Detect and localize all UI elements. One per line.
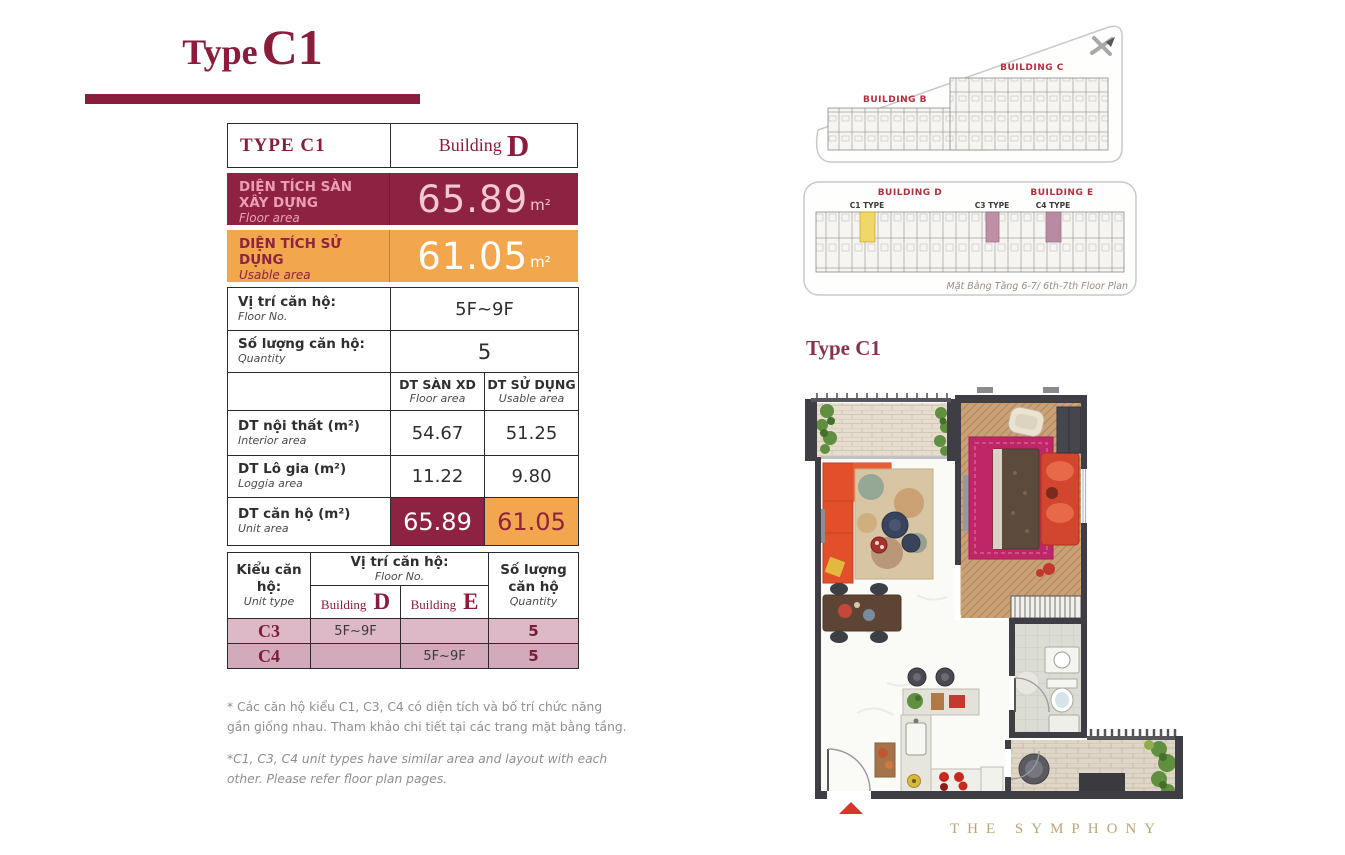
col1-en: Floor area (392, 392, 483, 406)
usable-area-label-en: Usable area (239, 268, 383, 283)
interior-v1: 54.67 (391, 411, 485, 456)
floor-plan-caption: Mặt Bằng Tầng 6-7/ 6th-7th Floor Plan (947, 281, 1129, 292)
unit-table-header1: Kiểu căn hộ: Unit type Vị trí căn hộ: Fl… (228, 553, 579, 586)
c3-quantity: 5 (489, 619, 579, 644)
apartment-floor-plan (797, 383, 1212, 825)
building-e-word: Building (411, 597, 457, 612)
c4-quantity: 5 (489, 644, 579, 669)
quantity-value: 5 (391, 331, 579, 373)
building-letter: D (507, 128, 529, 164)
floor-plan-type-label: Type C1 (806, 336, 881, 361)
quantity-label-vi: Số lượng căn hộ: (238, 336, 389, 352)
floor-no-value: 5F~9F (391, 288, 579, 331)
unit-types-table: Kiểu căn hộ: Unit type Vị trí căn hộ: Fl… (227, 552, 579, 669)
unit-type-header-vi: Kiểu căn hộ: (229, 562, 309, 594)
building-c-block (950, 78, 1108, 150)
row-col-headers: DT SÀN XD Floor area DT SỬ DỤNG Usable a… (228, 373, 579, 411)
unit-area-label-en: Unit area (238, 522, 389, 536)
col2-vi: DT SỬ DỤNG (486, 377, 577, 392)
quantity-label-en: Quantity (238, 352, 389, 366)
floor-area-number: 65.89 (417, 178, 528, 221)
interior-label: DT nội thất (m²) Interior area (228, 411, 391, 456)
usable-area-label-vi: DIỆN TÍCH SỬ DỤNG (239, 236, 383, 268)
usable-area-band: DIỆN TÍCH SỬ DỤNG Usable area 61.05 m² (227, 230, 578, 282)
row-loggia-area: DT Lô gia (m²) Loggia area 11.22 9.80 (228, 456, 579, 498)
building-d-header: Building D (311, 586, 401, 619)
qty-header-en: Quantity (490, 595, 577, 609)
spec-table: TYPE C1 Building D DIỆN TÍCH SÀN XÂY DỰN… (227, 123, 578, 282)
footnote-english: *C1, C3, C4 unit types have similar area… (227, 750, 629, 789)
unit-type-header: Kiểu căn hộ: Unit type (228, 553, 311, 619)
row-floor-no: Vị trí căn hộ: Floor No. 5F~9F (228, 288, 579, 331)
building-d-letter: D (373, 589, 390, 614)
c4-type-label: C4 TYPE (1036, 201, 1071, 210)
c4-building-d-floors (311, 644, 401, 669)
brochure-page: Type C1 TYPE C1 Building D DIỆN TÍCH SÀN… (0, 0, 1345, 855)
site-plan-buildings-b-c: BUILDING B BUILDING C (800, 12, 1140, 172)
floor-no-header-en: Floor No. (312, 570, 487, 584)
interior-v2: 51.25 (485, 411, 579, 456)
floor-no-label: Vị trí căn hộ: Floor No. (228, 288, 391, 331)
qty-header-vi: Số lượng căn hộ (490, 562, 577, 594)
page-title: Type C1 (85, 18, 420, 76)
usable-area-number: 61.05 (417, 235, 528, 278)
empty-cell (228, 373, 391, 411)
c4-code: C4 (228, 644, 311, 669)
floor-area-label-en: Floor area (239, 211, 383, 226)
loggia-label-en: Loggia area (238, 477, 389, 491)
col-header-usable-area: DT SỬ DỤNG Usable area (485, 373, 579, 411)
floor-area-band: DIỆN TÍCH SÀN XÂY DỰNG Floor area 65.89 … (227, 173, 578, 225)
title-underline (85, 94, 420, 104)
c3-building-d-floors: 5F~9F (311, 619, 401, 644)
qty-header: Số lượng căn hộ Quantity (489, 553, 579, 619)
loggia-v1: 11.22 (391, 456, 485, 498)
floor-no-label-vi: Vị trí căn hộ: (238, 294, 389, 310)
c4-building-e-floors: 5F~9F (401, 644, 489, 669)
col-header-floor-area: DT SÀN XD Floor area (391, 373, 485, 411)
c3-building-e-floors (401, 619, 489, 644)
col1-vi: DT SÀN XD (392, 377, 483, 392)
brand-logotype: THE SYMPHONY (950, 821, 1163, 838)
page-title-prefix: Type (182, 32, 257, 72)
spec-header-row: TYPE C1 Building D (227, 123, 578, 168)
floor-area-label-vi: DIỆN TÍCH SÀN XÂY DỰNG (239, 179, 383, 211)
loggia-v2: 9.80 (485, 456, 579, 498)
row-unit-area: DT căn hộ (m²) Unit area 65.89 61.05 (228, 498, 579, 546)
floor-no-label-en: Floor No. (238, 310, 389, 324)
unit-area-label-vi: DT căn hộ (m²) (238, 506, 389, 522)
quantity-label: Số lượng căn hộ: Quantity (228, 331, 391, 373)
loggia-label: DT Lô gia (m²) Loggia area (228, 456, 391, 498)
building-c-label: BUILDING C (1000, 63, 1064, 73)
detail-table: Vị trí căn hộ: Floor No. 5F~9F Số lượng … (227, 287, 579, 546)
floor-no-header-vi: Vị trí căn hộ: (312, 554, 487, 570)
footnote-vietnamese: * Các căn hộ kiểu C1, C3, C4 có diện tíc… (227, 698, 629, 737)
floor-area-value: 65.89 m² (390, 173, 578, 225)
interior-label-vi: DT nội thất (m²) (238, 418, 389, 434)
building-e-label: BUILDING E (1030, 188, 1093, 198)
interior-label-en: Interior area (238, 434, 389, 448)
floor-area-label: DIỆN TÍCH SÀN XÂY DỰNG Floor area (227, 173, 390, 225)
usable-area-unit: m² (530, 253, 551, 271)
entrance-marker (839, 802, 863, 814)
c4-unit-highlight (1046, 212, 1061, 242)
unit-area-label: DT căn hộ (m²) Unit area (228, 498, 391, 546)
site-plan-buildings-d-e: BUILDING D BUILDING E C1 TYPE C3 TYPE C4… (800, 178, 1140, 303)
c1-type-label: C1 TYPE (850, 201, 885, 210)
floor-area-unit: m² (530, 196, 551, 214)
c3-code: C3 (228, 619, 311, 644)
loggia-label-vi: DT Lô gia (m²) (238, 461, 389, 477)
table-row-c4: C4 5F~9F 5 (228, 644, 579, 669)
spec-building-cell: Building D (391, 124, 577, 167)
building-e-letter: E (463, 589, 478, 614)
building-b-label: BUILDING B (863, 95, 927, 105)
col2-en: Usable area (486, 392, 577, 406)
table-row-c3: C3 5F~9F 5 (228, 619, 579, 644)
unit-area-v2: 61.05 (485, 498, 579, 546)
unit-area-v1: 65.89 (391, 498, 485, 546)
c3-type-label: C3 TYPE (975, 201, 1010, 210)
usable-area-label: DIỆN TÍCH SỬ DỤNG Usable area (227, 230, 390, 282)
spec-type-cell: TYPE C1 (228, 124, 391, 167)
building-d-word: Building (321, 597, 367, 612)
floor-no-header: Vị trí căn hộ: Floor No. (311, 553, 489, 586)
unit-type-header-en: Unit type (229, 595, 309, 609)
building-word: Building (439, 135, 502, 156)
building-d-label: BUILDING D (878, 188, 943, 198)
c1-unit-highlight (860, 212, 875, 242)
row-quantity: Số lượng căn hộ: Quantity 5 (228, 331, 579, 373)
row-interior-area: DT nội thất (m²) Interior area 54.67 51.… (228, 411, 579, 456)
c3-unit-highlight (986, 212, 999, 242)
building-e-header: Building E (401, 586, 489, 619)
page-title-code: C1 (262, 19, 323, 75)
usable-area-value: 61.05 m² (390, 230, 578, 282)
closet-hatch (1011, 596, 1081, 618)
